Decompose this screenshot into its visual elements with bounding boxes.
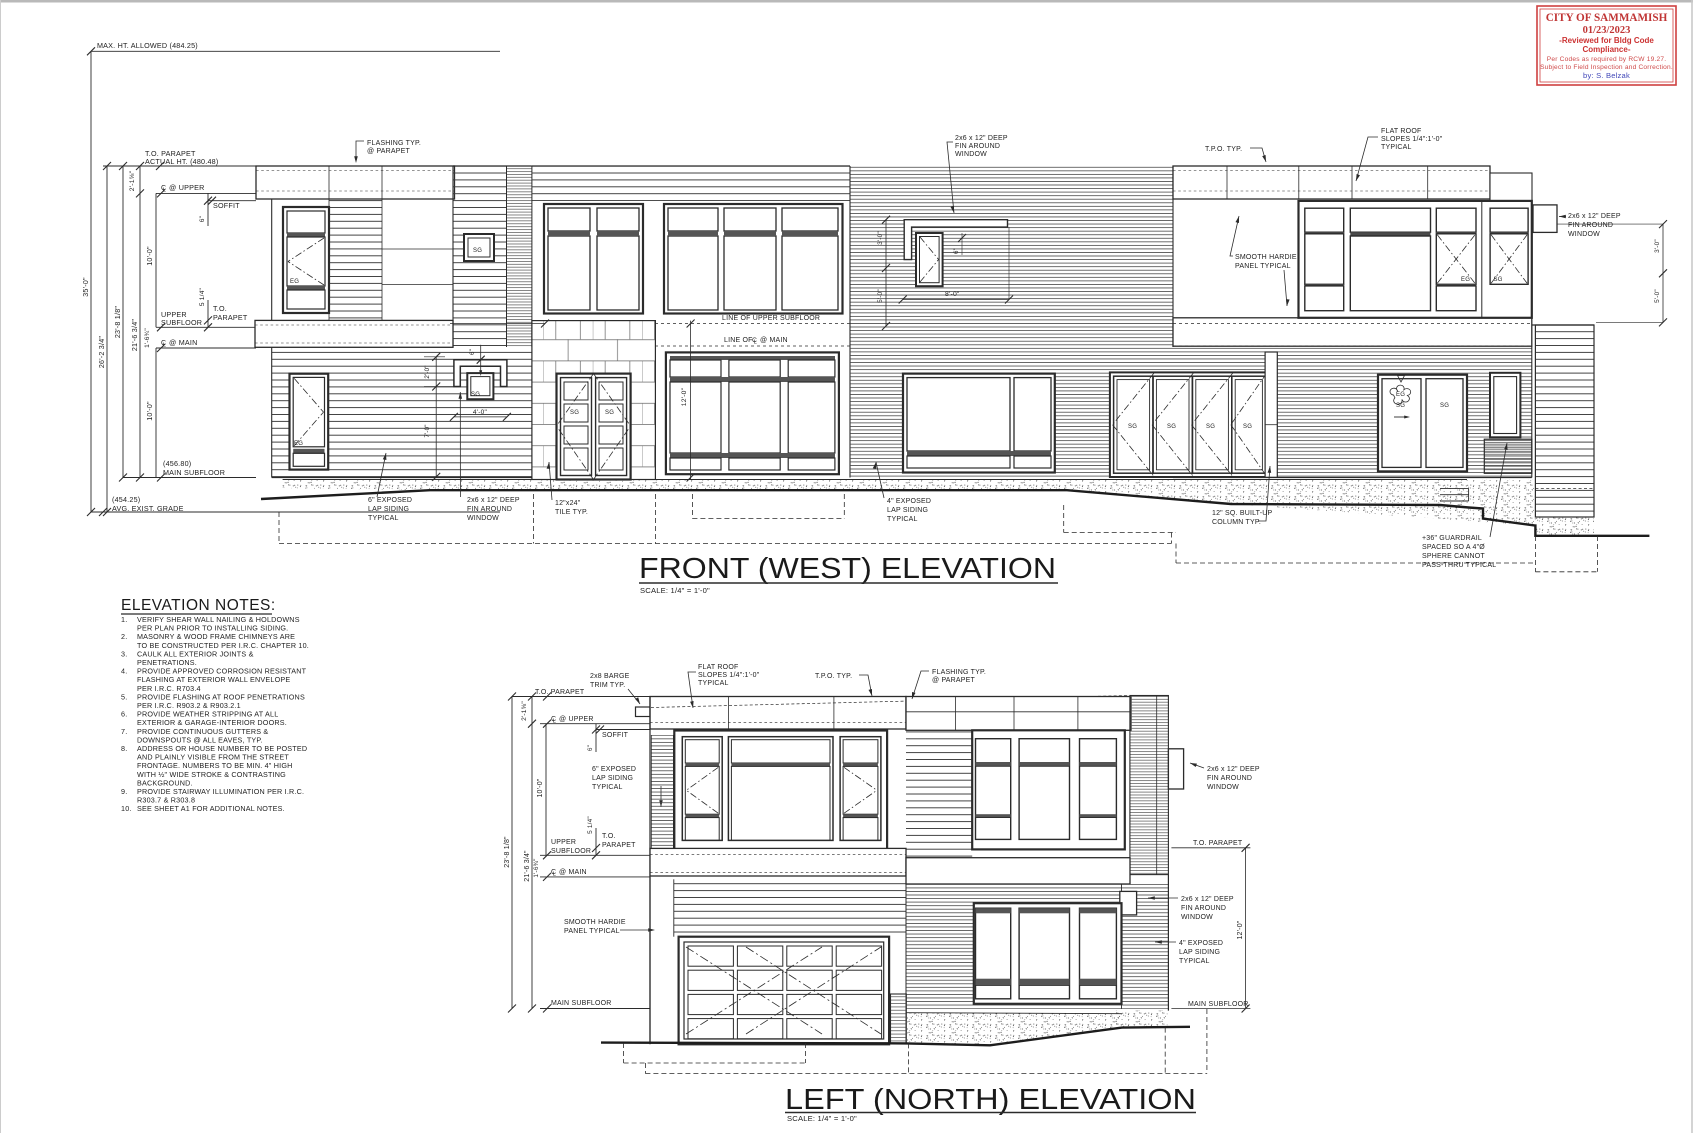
svg-text:LINE OF UPPER SUBFLOOR: LINE OF UPPER SUBFLOOR bbox=[722, 315, 820, 322]
svg-text:WINDOW: WINDOW bbox=[955, 151, 987, 158]
svg-text:L: L bbox=[553, 872, 556, 878]
svg-text:SPHERE CANNOT: SPHERE CANNOT bbox=[1422, 553, 1485, 560]
svg-text:(454.25): (454.25) bbox=[112, 495, 140, 504]
svg-text:WINDOW: WINDOW bbox=[1207, 784, 1239, 791]
svg-text:5 1/4": 5 1/4" bbox=[199, 287, 206, 306]
svg-text:TYPICAL: TYPICAL bbox=[1179, 958, 1210, 965]
svg-text:MAIN SUBFLOOR: MAIN SUBFLOOR bbox=[163, 468, 225, 477]
svg-text:SG: SG bbox=[1243, 424, 1252, 430]
svg-text:WINDOW: WINDOW bbox=[467, 515, 499, 522]
svg-text:10'-0": 10'-0" bbox=[145, 401, 154, 421]
svg-text:12" SQ. BUILT-UP: 12" SQ. BUILT-UP bbox=[1212, 510, 1273, 517]
svg-text:WINDOW: WINDOW bbox=[1181, 914, 1213, 921]
svg-text:4" EXPOSED: 4" EXPOSED bbox=[887, 498, 931, 505]
svg-text:T.P.O. TYP.: T.P.O. TYP. bbox=[815, 673, 852, 680]
svg-text:LAP SIDING: LAP SIDING bbox=[887, 507, 928, 514]
svg-text:PARAPET: PARAPET bbox=[602, 842, 636, 849]
svg-text:4" EXPOSED: 4" EXPOSED bbox=[1179, 940, 1223, 947]
svg-text:SG: SG bbox=[1440, 403, 1449, 409]
svg-text:2x6 x 12" DEEP: 2x6 x 12" DEEP bbox=[955, 135, 1008, 142]
svg-text:SCALE: 1/4" = 1'-0": SCALE: 1/4" = 1'-0" bbox=[787, 1114, 857, 1123]
svg-text:SCALE: 1/4" = 1'-0": SCALE: 1/4" = 1'-0" bbox=[640, 586, 710, 595]
svg-text:SLOPES 1/4":1'-0": SLOPES 1/4":1'-0" bbox=[698, 672, 760, 679]
svg-text:FIN AROUND: FIN AROUND bbox=[1207, 775, 1252, 782]
svg-text:EG: EG bbox=[290, 279, 299, 285]
svg-text:@ UPPER: @ UPPER bbox=[559, 716, 594, 723]
svg-text:4'-0": 4'-0" bbox=[473, 409, 488, 416]
svg-text:CITY OF SAMMAMISH: CITY OF SAMMAMISH bbox=[1546, 12, 1668, 24]
svg-text:26'-2 3/4": 26'-2 3/4" bbox=[97, 336, 106, 369]
svg-text:7.: 7. bbox=[121, 727, 127, 736]
svg-text:3'-0": 3'-0" bbox=[1654, 239, 1661, 253]
svg-text:9.: 9. bbox=[121, 787, 127, 796]
svg-text:-Reviewed for Bldg Code: -Reviewed for Bldg Code bbox=[1559, 36, 1654, 45]
svg-text:LAP SIDING: LAP SIDING bbox=[592, 775, 633, 782]
svg-text:8'-0": 8'-0" bbox=[945, 291, 960, 298]
svg-text:Per Codes as required by RCW 1: Per Codes as required by RCW 19.27. bbox=[1547, 56, 1667, 63]
svg-text:2x6 x 12" DEEP: 2x6 x 12" DEEP bbox=[1568, 213, 1621, 220]
svg-text:3'-0": 3'-0" bbox=[877, 231, 884, 245]
svg-text:MAIN SUBFLOOR: MAIN SUBFLOOR bbox=[551, 1000, 612, 1007]
svg-text:PANEL TYPICAL: PANEL TYPICAL bbox=[1235, 263, 1291, 270]
svg-text:2'-0": 2'-0" bbox=[424, 365, 431, 378]
svg-text:SUBFLOOR: SUBFLOOR bbox=[551, 848, 591, 855]
svg-text:10'-0": 10'-0" bbox=[145, 246, 154, 266]
svg-text:SUBFLOOR: SUBFLOOR bbox=[161, 318, 202, 327]
svg-text:Subject to Field Inspection an: Subject to Field Inspection and Correcti… bbox=[1540, 64, 1673, 71]
svg-text:PARAPET: PARAPET bbox=[213, 313, 248, 322]
svg-text:T.O. PARAPET: T.O. PARAPET bbox=[535, 689, 585, 696]
svg-text:FIN AROUND: FIN AROUND bbox=[1568, 222, 1613, 229]
svg-text:FRONT (WEST) ELEVATION: FRONT (WEST) ELEVATION bbox=[639, 553, 1056, 585]
svg-text:10.: 10. bbox=[121, 804, 132, 813]
svg-text:1'-6¾": 1'-6¾" bbox=[144, 328, 151, 348]
svg-text:TYPICAL: TYPICAL bbox=[592, 784, 623, 791]
svg-text:@ MAIN: @ MAIN bbox=[760, 337, 788, 344]
svg-text:MAIN SUBFLOOR: MAIN SUBFLOOR bbox=[1188, 1001, 1249, 1008]
svg-text:MAX. HT. ALLOWED (484.25): MAX. HT. ALLOWED (484.25) bbox=[97, 41, 198, 50]
svg-text:SG: SG bbox=[570, 410, 579, 416]
svg-text:3.: 3. bbox=[121, 649, 127, 658]
svg-text:SMOOTH HARDIE: SMOOTH HARDIE bbox=[1235, 254, 1297, 261]
svg-text:LAP SIDING: LAP SIDING bbox=[368, 506, 409, 513]
svg-text:SLOPES 1/4":1'-0": SLOPES 1/4":1'-0" bbox=[1381, 136, 1443, 143]
svg-text:8.: 8. bbox=[121, 744, 127, 753]
svg-text:2x8 BARGE: 2x8 BARGE bbox=[590, 673, 630, 680]
svg-text:LAP SIDING: LAP SIDING bbox=[1179, 949, 1220, 956]
svg-text:35'-0": 35'-0" bbox=[81, 277, 90, 297]
svg-text:SG: SG bbox=[605, 410, 614, 416]
svg-text:FLAT ROOF: FLAT ROOF bbox=[1381, 128, 1421, 135]
svg-text:2.: 2. bbox=[121, 632, 127, 641]
svg-text:SG: SG bbox=[1167, 424, 1176, 430]
svg-text:COLUMN TYP.: COLUMN TYP. bbox=[1212, 519, 1261, 526]
svg-text:L: L bbox=[754, 340, 757, 346]
svg-text:6": 6" bbox=[953, 248, 960, 254]
svg-text:FLAT ROOF: FLAT ROOF bbox=[698, 664, 738, 671]
svg-text:5.: 5. bbox=[121, 692, 127, 701]
svg-text:23'-8 1/8": 23'-8 1/8" bbox=[504, 836, 511, 868]
svg-text:SEE SHEET A1 FOR ADDITIONAL NO: SEE SHEET A1 FOR ADDITIONAL NOTES. bbox=[137, 804, 285, 813]
svg-text:TYPICAL: TYPICAL bbox=[887, 516, 918, 523]
svg-text:5 1/4": 5 1/4" bbox=[587, 816, 594, 834]
svg-text:10'-0": 10'-0" bbox=[537, 778, 544, 797]
svg-text:6": 6" bbox=[587, 745, 594, 751]
svg-text:TYPICAL: TYPICAL bbox=[698, 680, 729, 687]
svg-text:(456.80): (456.80) bbox=[163, 459, 191, 468]
svg-text:EG: EG bbox=[1461, 277, 1470, 283]
svg-text:by: S. Belzak: by: S. Belzak bbox=[1583, 71, 1630, 80]
svg-text:@ PARAPET: @ PARAPET bbox=[367, 148, 411, 155]
svg-text:FIN AROUND: FIN AROUND bbox=[1181, 905, 1226, 912]
svg-text:T.O.: T.O. bbox=[213, 304, 227, 313]
svg-text:SMOOTH HARDIE: SMOOTH HARDIE bbox=[564, 919, 626, 926]
svg-text:2'-1⅝": 2'-1⅝" bbox=[129, 170, 136, 191]
svg-text:6": 6" bbox=[469, 349, 476, 355]
svg-text:ELEVATION NOTES:: ELEVATION NOTES: bbox=[121, 597, 276, 614]
svg-text:EG: EG bbox=[294, 441, 303, 447]
svg-text:1'-6¾": 1'-6¾" bbox=[533, 858, 540, 877]
svg-text:FIN AROUND: FIN AROUND bbox=[955, 143, 1000, 150]
svg-text:UPPER: UPPER bbox=[551, 839, 576, 846]
svg-text:SPACED SO A 4"Ø: SPACED SO A 4"Ø bbox=[1422, 544, 1485, 551]
svg-text:@ UPPER: @ UPPER bbox=[169, 183, 204, 192]
svg-text:12'-0": 12'-0" bbox=[681, 387, 688, 406]
svg-text:L: L bbox=[163, 343, 166, 349]
svg-text:6" EXPOSED: 6" EXPOSED bbox=[592, 766, 636, 773]
svg-text:@ PARAPET: @ PARAPET bbox=[932, 677, 976, 684]
svg-text:2x6 x 12" DEEP: 2x6 x 12" DEEP bbox=[1181, 896, 1234, 903]
svg-text:SG: SG bbox=[1128, 424, 1137, 430]
svg-text:SG: SG bbox=[473, 248, 482, 254]
svg-text:2x6 x 12" DEEP: 2x6 x 12" DEEP bbox=[467, 497, 520, 504]
svg-text:23'-8 1/8": 23'-8 1/8" bbox=[113, 306, 122, 339]
svg-text:SG: SG bbox=[1206, 424, 1215, 430]
svg-text:FIN AROUND: FIN AROUND bbox=[467, 506, 512, 513]
svg-text:TYPICAL: TYPICAL bbox=[368, 515, 399, 522]
svg-text:T.O.: T.O. bbox=[602, 833, 616, 840]
svg-text:SOFFIT: SOFFIT bbox=[213, 201, 240, 210]
svg-text:T.P.O. TYP.: T.P.O. TYP. bbox=[1205, 146, 1242, 153]
svg-text:TYPICAL: TYPICAL bbox=[1381, 144, 1412, 151]
svg-text:FLASHING TYP.: FLASHING TYP. bbox=[932, 669, 986, 676]
svg-text:ACTUAL HT. (480.48): ACTUAL HT. (480.48) bbox=[145, 157, 218, 166]
svg-text:SG: SG bbox=[1396, 403, 1405, 409]
svg-text:12"x24": 12"x24" bbox=[555, 500, 581, 507]
svg-text:T.O. PARAPET: T.O. PARAPET bbox=[1193, 840, 1243, 847]
svg-text:LEFT (NORTH) ELEVATION: LEFT (NORTH) ELEVATION bbox=[785, 1084, 1196, 1116]
svg-text:FLASHING TYP.: FLASHING TYP. bbox=[367, 140, 421, 147]
svg-text:SG: SG bbox=[471, 392, 480, 398]
svg-text:5'-0": 5'-0" bbox=[1654, 289, 1661, 303]
svg-text:@ MAIN: @ MAIN bbox=[169, 338, 197, 347]
svg-text:L: L bbox=[163, 188, 166, 194]
svg-text:1.: 1. bbox=[121, 615, 127, 624]
svg-text:TILE TYP.: TILE TYP. bbox=[555, 509, 588, 516]
svg-text:PASS-THRU TYPICAL: PASS-THRU TYPICAL bbox=[1422, 562, 1496, 569]
svg-text:L: L bbox=[553, 719, 556, 725]
svg-text:@ MAIN: @ MAIN bbox=[559, 869, 587, 876]
svg-text:LINE OF: LINE OF bbox=[724, 337, 753, 344]
svg-text:21'-6 3/4": 21'-6 3/4" bbox=[524, 850, 531, 882]
svg-text:4.: 4. bbox=[121, 667, 127, 676]
svg-text:SOFFIT: SOFFIT bbox=[602, 732, 629, 739]
svg-text:TRIM TYP.: TRIM TYP. bbox=[590, 682, 625, 689]
svg-text:+36" GUARDRAIL: +36" GUARDRAIL bbox=[1422, 535, 1482, 542]
svg-text:5'-0": 5'-0" bbox=[877, 289, 884, 303]
svg-text:SG: SG bbox=[1494, 277, 1503, 283]
svg-text:6.: 6. bbox=[121, 710, 127, 719]
svg-text:6": 6" bbox=[199, 215, 206, 222]
svg-text:WINDOW: WINDOW bbox=[1568, 231, 1600, 238]
svg-text:2'-1⅝": 2'-1⅝" bbox=[521, 701, 528, 721]
svg-text:21'-6 3/4": 21'-6 3/4" bbox=[130, 319, 139, 352]
svg-text:7'-0": 7'-0" bbox=[424, 424, 431, 437]
svg-text:01/23/2023: 01/23/2023 bbox=[1583, 25, 1631, 36]
svg-text:PANEL TYPICAL: PANEL TYPICAL bbox=[564, 928, 620, 935]
svg-text:12'-0": 12'-0" bbox=[1237, 920, 1244, 939]
svg-text:6" EXPOSED: 6" EXPOSED bbox=[368, 497, 412, 504]
svg-text:EG: EG bbox=[1396, 392, 1405, 398]
svg-text:2x6 x 12" DEEP: 2x6 x 12" DEEP bbox=[1207, 766, 1260, 773]
svg-text:Compliance-: Compliance- bbox=[1582, 45, 1630, 54]
